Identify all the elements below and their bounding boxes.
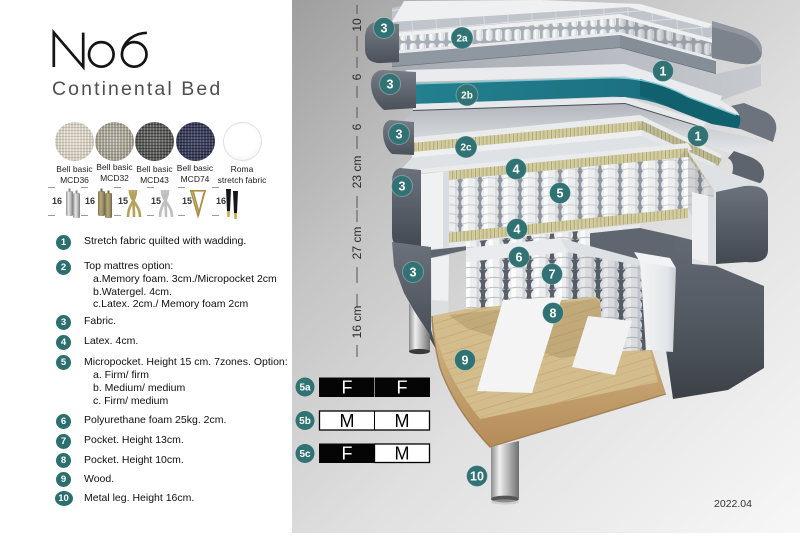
- svg-text:16: 16: [85, 196, 95, 206]
- svg-text:1: 1: [695, 130, 702, 144]
- svg-text:F: F: [397, 378, 408, 398]
- svg-text:5b: 5b: [299, 416, 311, 427]
- svg-text:2022.04: 2022.04: [714, 498, 752, 510]
- svg-text:8: 8: [550, 307, 557, 321]
- svg-text:5c: 5c: [299, 449, 311, 460]
- svg-text:4: 4: [514, 223, 521, 237]
- svg-text:4: 4: [513, 163, 520, 177]
- svg-text:15: 15: [182, 196, 192, 206]
- svg-text:16: 16: [216, 196, 226, 206]
- svg-text:6: 6: [350, 73, 364, 80]
- svg-text:M: M: [395, 411, 410, 431]
- svg-text:3: 3: [399, 180, 406, 194]
- svg-text:3: 3: [381, 22, 388, 36]
- svg-text:6: 6: [516, 251, 523, 265]
- svg-text:2c: 2c: [460, 143, 472, 154]
- svg-text:10: 10: [470, 470, 484, 484]
- svg-text:9: 9: [462, 354, 469, 368]
- svg-text:15: 15: [151, 196, 161, 206]
- svg-text:6: 6: [350, 123, 364, 130]
- svg-text:27 cm: 27 cm: [350, 227, 364, 260]
- svg-text:3: 3: [387, 78, 394, 92]
- svg-text:15: 15: [118, 196, 128, 206]
- svg-text:5a: 5a: [299, 383, 311, 394]
- svg-text:23 cm: 23 cm: [350, 156, 364, 189]
- svg-text:16 cm: 16 cm: [350, 306, 364, 339]
- svg-text:10: 10: [350, 18, 364, 32]
- svg-text:F: F: [342, 444, 353, 464]
- svg-text:3: 3: [410, 266, 417, 280]
- svg-text:F: F: [342, 378, 353, 398]
- svg-text:16: 16: [52, 196, 62, 206]
- svg-text:5: 5: [557, 187, 564, 201]
- svg-text:2a: 2a: [456, 34, 468, 45]
- svg-text:M: M: [340, 411, 355, 431]
- svg-text:1: 1: [660, 65, 667, 79]
- svg-text:3: 3: [396, 128, 403, 142]
- svg-text:7: 7: [549, 268, 556, 282]
- svg-text:M: M: [395, 444, 410, 464]
- svg-text:2b: 2b: [461, 91, 473, 102]
